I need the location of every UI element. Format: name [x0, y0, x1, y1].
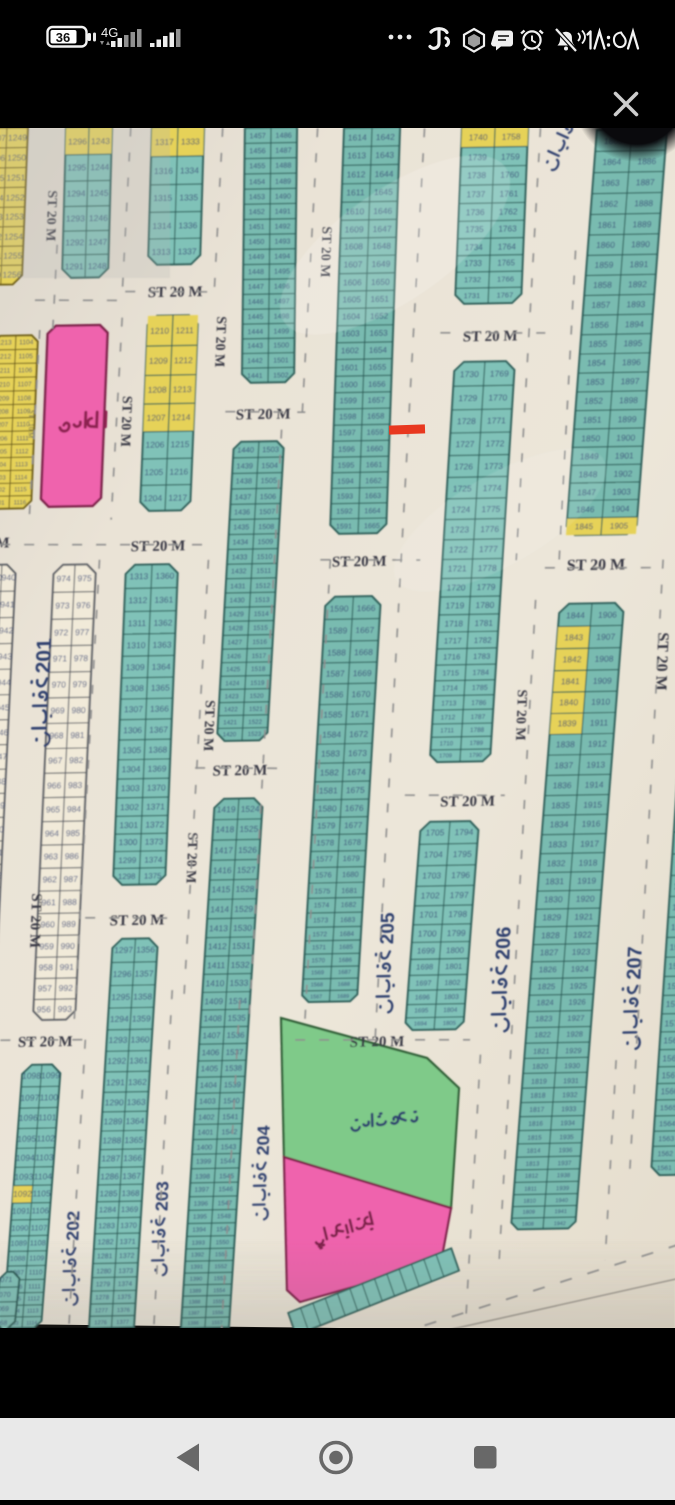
- svg-text:ST 20 M: ST 20 M: [211, 316, 228, 367]
- svg-text:1360: 1360: [130, 1035, 150, 1045]
- svg-text:ST 20 M: ST 20 M: [462, 328, 517, 345]
- svg-text:1289: 1289: [103, 1116, 123, 1126]
- svg-text:1436: 1436: [234, 507, 251, 516]
- svg-text:1401: 1401: [197, 1127, 214, 1136]
- svg-text:1705: 1705: [425, 827, 445, 837]
- svg-text:1207: 1207: [0, 422, 9, 429]
- svg-text:1918: 1918: [578, 858, 598, 868]
- svg-text:1523: 1523: [247, 731, 262, 738]
- svg-text:1612: 1612: [346, 169, 366, 179]
- svg-text:1116: 1116: [13, 499, 27, 506]
- svg-text:1582: 1582: [320, 767, 340, 777]
- svg-text:205: 205: [377, 912, 399, 944]
- svg-text:1501: 1501: [273, 358, 289, 365]
- svg-text:1293: 1293: [108, 1035, 128, 1045]
- svg-text:1517: 1517: [251, 653, 266, 660]
- svg-text:1678: 1678: [343, 838, 362, 847]
- svg-text:1800: 1800: [446, 946, 465, 955]
- svg-text:1373: 1373: [145, 836, 164, 846]
- svg-text:1105: 1105: [18, 353, 33, 360]
- svg-text:1923: 1923: [571, 947, 591, 957]
- svg-text:1215: 1215: [170, 439, 190, 449]
- svg-text:ST 20 M: ST 20 M: [117, 396, 134, 447]
- svg-text:1435: 1435: [233, 522, 249, 531]
- svg-text:1568: 1568: [662, 1053, 675, 1063]
- svg-text:1406: 1406: [201, 1048, 220, 1057]
- svg-text:1682: 1682: [341, 902, 357, 909]
- svg-text:1816: 1816: [528, 1120, 544, 1127]
- svg-text:1781: 1781: [474, 618, 493, 628]
- svg-text:1684: 1684: [339, 931, 354, 938]
- svg-text:1520: 1520: [249, 693, 264, 700]
- svg-text:1937: 1937: [557, 1160, 572, 1167]
- svg-text:1396: 1396: [193, 1200, 208, 1207]
- svg-text:956: 956: [36, 1004, 51, 1014]
- svg-text:1915: 1915: [583, 800, 603, 810]
- svg-text:1212: 1212: [0, 354, 12, 361]
- svg-text:1375: 1375: [144, 871, 163, 880]
- svg-text:1310: 1310: [126, 640, 146, 650]
- svg-text:1803: 1803: [443, 994, 459, 1001]
- svg-text:1575: 1575: [671, 922, 675, 932]
- svg-text:1547: 1547: [217, 1200, 232, 1207]
- svg-text:1764: 1764: [498, 243, 517, 252]
- svg-text:1397: 1397: [194, 1186, 209, 1193]
- svg-text:1208: 1208: [0, 409, 9, 416]
- svg-text:1369: 1369: [147, 763, 167, 773]
- svg-text:1544: 1544: [220, 1158, 236, 1165]
- svg-text:1700: 1700: [417, 928, 437, 938]
- svg-text:1423: 1423: [224, 693, 239, 700]
- svg-text:1566: 1566: [660, 1087, 675, 1096]
- svg-text:1829: 1829: [542, 912, 562, 922]
- svg-text:1430: 1430: [229, 597, 245, 604]
- svg-text:1449: 1449: [248, 252, 264, 261]
- svg-text:1394: 1394: [192, 1226, 207, 1233]
- svg-text:992: 992: [58, 983, 73, 993]
- svg-text:1860: 1860: [596, 240, 616, 250]
- svg-text:1940: 1940: [555, 1198, 568, 1204]
- svg-text:1519: 1519: [250, 680, 265, 687]
- svg-text:1715: 1715: [442, 668, 459, 677]
- svg-text:941: 941: [0, 599, 15, 609]
- svg-text:1790: 1790: [469, 753, 482, 759]
- svg-text:1843: 1843: [564, 632, 584, 642]
- svg-text:1094: 1094: [15, 1153, 35, 1163]
- svg-text:1447: 1447: [248, 282, 264, 291]
- svg-text:1643: 1643: [375, 150, 395, 160]
- svg-text:966: 966: [47, 780, 62, 790]
- svg-text:ST 20 M: ST 20 M: [183, 832, 200, 883]
- svg-text:1098: 1098: [22, 1070, 42, 1080]
- svg-text:1503: 1503: [262, 445, 279, 454]
- svg-text:963: 963: [44, 851, 59, 861]
- svg-text:1512: 1512: [255, 583, 271, 590]
- svg-text:1518: 1518: [251, 666, 266, 673]
- svg-text:1205: 1205: [144, 467, 164, 477]
- svg-text:1826: 1826: [538, 965, 557, 974]
- svg-text:1593: 1593: [337, 491, 354, 500]
- svg-text:1573: 1573: [668, 961, 675, 971]
- svg-text:1697: 1697: [415, 979, 432, 988]
- svg-text:1711: 1711: [440, 727, 455, 734]
- svg-text:1491: 1491: [275, 207, 291, 216]
- svg-text:1283: 1283: [98, 1221, 115, 1230]
- svg-text:1367: 1367: [149, 724, 169, 734]
- svg-text:1573: 1573: [313, 917, 329, 924]
- svg-text:1917: 1917: [580, 839, 600, 849]
- svg-text:1488: 1488: [275, 161, 291, 170]
- svg-text:1675: 1675: [346, 785, 366, 795]
- svg-text:1445: 1445: [248, 313, 264, 321]
- svg-text:1420: 1420: [222, 731, 237, 738]
- svg-text:1099: 1099: [41, 1070, 61, 1080]
- svg-text:1589: 1589: [328, 625, 348, 635]
- svg-text:1893: 1893: [626, 299, 646, 309]
- svg-text:1452: 1452: [249, 207, 265, 216]
- svg-text:1545: 1545: [219, 1173, 235, 1180]
- svg-text:1093: 1093: [14, 1172, 34, 1182]
- svg-text:1855: 1855: [588, 339, 608, 349]
- svg-text:1515: 1515: [253, 625, 269, 632]
- svg-text:ST 20 M: ST 20 M: [440, 794, 495, 811]
- svg-text:1758: 1758: [502, 132, 522, 142]
- svg-text:1590: 1590: [329, 603, 349, 613]
- svg-text:948: 948: [0, 776, 6, 786]
- svg-text:1216: 1216: [169, 466, 189, 476]
- svg-text:1810: 1810: [523, 1198, 536, 1204]
- svg-text:1370: 1370: [147, 782, 167, 792]
- svg-text:1542: 1542: [221, 1127, 238, 1136]
- svg-text:1685: 1685: [339, 944, 354, 951]
- svg-text:1669: 1669: [353, 668, 373, 678]
- svg-text:1206: 1206: [145, 440, 165, 450]
- svg-text:1702: 1702: [420, 890, 440, 900]
- svg-text:958: 958: [38, 962, 53, 972]
- svg-text:1106: 1106: [31, 1206, 50, 1215]
- svg-text:1487: 1487: [275, 146, 292, 155]
- svg-text:1301: 1301: [119, 820, 139, 830]
- svg-text:1295: 1295: [111, 992, 131, 1002]
- svg-text:1890: 1890: [631, 239, 651, 249]
- svg-text:1311: 1311: [128, 618, 147, 628]
- svg-text:1370: 1370: [120, 1221, 137, 1230]
- svg-text:1510: 1510: [256, 553, 272, 561]
- svg-text:1422: 1422: [224, 706, 239, 713]
- svg-text:1534: 1534: [228, 996, 248, 1006]
- svg-text:989: 989: [61, 919, 76, 929]
- svg-text:1525: 1525: [239, 824, 259, 834]
- svg-text:1831: 1831: [545, 876, 565, 886]
- svg-text:1920: 1920: [575, 894, 595, 904]
- svg-text:1303: 1303: [121, 783, 141, 793]
- svg-text:1611: 1611: [346, 187, 365, 197]
- svg-text:1572: 1572: [312, 931, 327, 938]
- svg-text:1674: 1674: [347, 767, 367, 777]
- svg-text:1668: 1668: [354, 647, 374, 657]
- svg-text:1694: 1694: [413, 1022, 427, 1028]
- svg-text:1537: 1537: [225, 1048, 244, 1057]
- svg-text:ST 20 M: ST 20 M: [512, 689, 529, 740]
- svg-text:1571: 1571: [665, 999, 675, 1009]
- svg-text:1412: 1412: [208, 941, 228, 951]
- svg-text:1104: 1104: [33, 1171, 52, 1181]
- svg-text:1212: 1212: [174, 355, 194, 365]
- svg-text:991: 991: [59, 962, 74, 972]
- svg-text:965: 965: [46, 804, 61, 814]
- svg-text:1825: 1825: [537, 982, 556, 991]
- svg-text:1699: 1699: [417, 946, 436, 955]
- svg-text:1891: 1891: [629, 259, 649, 269]
- svg-text:1656: 1656: [368, 380, 386, 389]
- svg-text:1797: 1797: [449, 890, 469, 900]
- svg-text:1506: 1506: [259, 492, 276, 501]
- svg-text:1833: 1833: [548, 839, 568, 849]
- svg-text:1107: 1107: [30, 1223, 47, 1232]
- svg-text:1687: 1687: [338, 970, 351, 976]
- svg-text:1443: 1443: [247, 342, 263, 350]
- svg-text:977: 977: [75, 627, 90, 637]
- svg-text:1363: 1363: [126, 1097, 146, 1107]
- svg-text:964: 964: [45, 828, 60, 838]
- svg-text:1564: 1564: [659, 1119, 675, 1128]
- svg-text:1309: 1309: [126, 662, 146, 672]
- svg-text:1213: 1213: [0, 340, 12, 347]
- svg-text:1820: 1820: [532, 1061, 549, 1070]
- svg-text:1655: 1655: [368, 363, 387, 372]
- svg-text:1897: 1897: [620, 376, 640, 386]
- svg-text:1701: 1701: [419, 909, 439, 919]
- svg-text:1681: 1681: [341, 886, 358, 895]
- svg-text:979: 979: [72, 679, 87, 689]
- svg-text:1433: 1433: [231, 553, 247, 561]
- svg-text:1644: 1644: [374, 169, 394, 179]
- svg-text:1572: 1572: [667, 981, 675, 991]
- svg-text:993: 993: [57, 1004, 72, 1014]
- svg-text:1203: 1203: [0, 475, 6, 482]
- svg-text:1928: 1928: [566, 1030, 583, 1039]
- svg-text:1901: 1901: [615, 450, 635, 460]
- svg-text:1578: 1578: [316, 838, 335, 847]
- svg-text:974: 974: [56, 573, 71, 583]
- svg-text:1907: 1907: [596, 631, 616, 641]
- svg-text:1588: 1588: [327, 647, 347, 657]
- svg-text:1889: 1889: [632, 219, 652, 229]
- svg-text:1818: 1818: [530, 1092, 546, 1099]
- svg-text:1567: 1567: [661, 1071, 675, 1080]
- svg-text:1450: 1450: [248, 237, 264, 246]
- svg-text:1892: 1892: [628, 279, 648, 289]
- svg-text:1202: 1202: [0, 487, 6, 494]
- svg-text:1356: 1356: [136, 945, 156, 955]
- svg-text:1835: 1835: [551, 800, 571, 810]
- svg-text:1361: 1361: [154, 594, 174, 604]
- svg-text:ST 20 M: ST 20 M: [236, 406, 291, 423]
- svg-text:1414: 1414: [210, 904, 230, 914]
- svg-text:1312: 1312: [128, 595, 148, 605]
- svg-text:1824: 1824: [536, 998, 555, 1007]
- svg-text:1909: 1909: [593, 675, 613, 685]
- svg-text:1092: 1092: [13, 1189, 33, 1199]
- svg-text:1095: 1095: [17, 1134, 37, 1144]
- svg-text:940: 940: [1, 572, 16, 582]
- svg-text:1813: 1813: [525, 1160, 540, 1167]
- svg-text:1308: 1308: [125, 683, 145, 693]
- svg-text:1305: 1305: [122, 745, 142, 755]
- svg-text:1581: 1581: [319, 785, 339, 795]
- svg-text:1400: 1400: [196, 1143, 212, 1151]
- svg-text:1613: 1613: [347, 150, 367, 160]
- svg-text:1549: 1549: [216, 1226, 231, 1233]
- svg-text:1100: 1100: [39, 1092, 58, 1102]
- svg-text:1504: 1504: [261, 461, 278, 470]
- svg-text:1914: 1914: [584, 780, 604, 790]
- svg-text:1854: 1854: [587, 358, 607, 368]
- svg-text:975: 975: [77, 573, 92, 583]
- svg-text:1859: 1859: [594, 260, 614, 270]
- svg-text:1763: 1763: [498, 224, 517, 234]
- svg-text:1431: 1431: [230, 583, 246, 590]
- svg-text:1455: 1455: [249, 161, 265, 170]
- svg-text:1822: 1822: [534, 1030, 551, 1039]
- svg-text:1419: 1419: [216, 804, 236, 814]
- svg-text:1368: 1368: [148, 744, 168, 754]
- svg-text:1671: 1671: [350, 709, 370, 719]
- svg-text:1442: 1442: [247, 358, 263, 365]
- svg-text:1642: 1642: [376, 132, 396, 142]
- svg-text:1788: 1788: [470, 727, 485, 734]
- svg-text:1574: 1574: [669, 942, 675, 952]
- svg-text:1679: 1679: [342, 854, 360, 863]
- svg-text:1903: 1903: [612, 486, 632, 496]
- svg-text:978: 978: [74, 653, 89, 663]
- svg-text:1913: 1913: [586, 760, 606, 770]
- svg-text:1798: 1798: [448, 909, 468, 919]
- svg-text:1543: 1543: [220, 1143, 236, 1151]
- svg-text:1785: 1785: [471, 683, 488, 692]
- svg-text:1836: 1836: [552, 780, 572, 790]
- svg-text:990: 990: [60, 941, 75, 951]
- svg-text:1565: 1565: [660, 1103, 675, 1112]
- svg-text:1926: 1926: [568, 998, 586, 1007]
- svg-text:1102: 1102: [36, 1133, 55, 1143]
- svg-text:1567: 1567: [310, 994, 322, 1000]
- svg-text:1858: 1858: [593, 280, 613, 290]
- svg-text:1502: 1502: [273, 373, 289, 380]
- svg-text:207: 207: [623, 946, 646, 980]
- svg-text:1795: 1795: [453, 849, 473, 859]
- svg-text:1740: 1740: [469, 132, 489, 142]
- svg-text:1091: 1091: [12, 1207, 31, 1216]
- svg-text:1667: 1667: [355, 625, 375, 635]
- svg-text:1733: 1733: [464, 259, 483, 268]
- svg-text:1214: 1214: [171, 412, 191, 422]
- svg-text:1666: 1666: [356, 603, 376, 613]
- svg-text:1718: 1718: [444, 618, 463, 628]
- svg-text:1438: 1438: [235, 476, 252, 485]
- svg-text:1851: 1851: [582, 415, 602, 425]
- svg-text:1535: 1535: [227, 1013, 246, 1023]
- svg-text:1424: 1424: [225, 680, 240, 687]
- svg-text:1302: 1302: [120, 802, 140, 812]
- svg-text:1577: 1577: [315, 854, 333, 863]
- svg-text:1827: 1827: [539, 947, 559, 957]
- svg-text:1575: 1575: [314, 886, 331, 895]
- svg-text:1441: 1441: [247, 373, 263, 380]
- svg-text:1440: 1440: [237, 445, 254, 454]
- svg-text:1217: 1217: [168, 492, 188, 502]
- svg-text:1208: 1208: [148, 385, 168, 395]
- svg-text:1513: 1513: [254, 597, 270, 604]
- svg-text:1910: 1910: [591, 697, 611, 707]
- svg-text:1658: 1658: [367, 412, 385, 421]
- svg-text:1922: 1922: [573, 930, 593, 940]
- svg-text:1698: 1698: [416, 963, 434, 972]
- svg-text:1673: 1673: [348, 748, 368, 758]
- svg-text:1598: 1598: [339, 412, 357, 421]
- svg-text:1402: 1402: [198, 1112, 215, 1121]
- svg-text:ST 20 M: ST 20 M: [109, 912, 164, 929]
- svg-text:1421: 1421: [223, 719, 238, 726]
- svg-text:1365: 1365: [151, 682, 171, 692]
- svg-text:1857: 1857: [591, 300, 611, 310]
- svg-text:1548: 1548: [217, 1213, 232, 1220]
- svg-text:1925: 1925: [569, 982, 588, 991]
- svg-text:1103: 1103: [35, 1152, 54, 1162]
- svg-text:1489: 1489: [275, 177, 291, 186]
- svg-text:1287: 1287: [101, 1153, 121, 1163]
- svg-text:ST 20 M: ST 20 M: [212, 763, 267, 780]
- svg-text:1661: 1661: [366, 460, 383, 469]
- svg-text:1704: 1704: [424, 849, 444, 859]
- svg-text:36: 36: [56, 30, 70, 45]
- svg-text:1574: 1574: [314, 902, 330, 909]
- svg-text:968: 968: [49, 730, 64, 740]
- svg-text:962: 962: [42, 874, 57, 884]
- svg-text:1288: 1288: [102, 1135, 122, 1145]
- svg-text:1307: 1307: [124, 704, 144, 714]
- svg-text:1838: 1838: [556, 739, 576, 749]
- svg-text:1905: 1905: [610, 521, 629, 530]
- svg-text:1904: 1904: [611, 503, 631, 513]
- svg-text:1428: 1428: [228, 625, 244, 632]
- svg-text:1845: 1845: [575, 522, 594, 531]
- svg-text:1434: 1434: [232, 538, 248, 546]
- svg-text:1526: 1526: [238, 845, 258, 855]
- svg-text:1369: 1369: [121, 1205, 139, 1214]
- svg-text:1454: 1454: [249, 177, 265, 186]
- svg-text:1603: 1603: [341, 329, 360, 338]
- svg-text:1895: 1895: [623, 338, 643, 348]
- svg-text:1101: 1101: [38, 1112, 57, 1122]
- svg-text:1539: 1539: [224, 1080, 242, 1089]
- svg-text:1767: 1767: [496, 291, 513, 300]
- svg-text:1695: 1695: [414, 1008, 429, 1015]
- svg-text:1934: 1934: [560, 1120, 576, 1127]
- svg-text:1660: 1660: [366, 444, 383, 453]
- svg-text:1850: 1850: [581, 433, 601, 443]
- svg-text:1508: 1508: [258, 522, 274, 531]
- svg-text:1709: 1709: [439, 753, 452, 759]
- svg-text:983: 983: [68, 780, 83, 790]
- svg-text:ST 20 M: ST 20 M: [18, 1034, 73, 1051]
- svg-text:1844: 1844: [566, 610, 586, 620]
- svg-text:1106: 1106: [18, 367, 33, 374]
- svg-text:1591: 1591: [336, 521, 352, 530]
- svg-text:1365: 1365: [124, 1135, 144, 1145]
- svg-text:1313: 1313: [129, 571, 149, 581]
- svg-text:1787: 1787: [470, 714, 485, 721]
